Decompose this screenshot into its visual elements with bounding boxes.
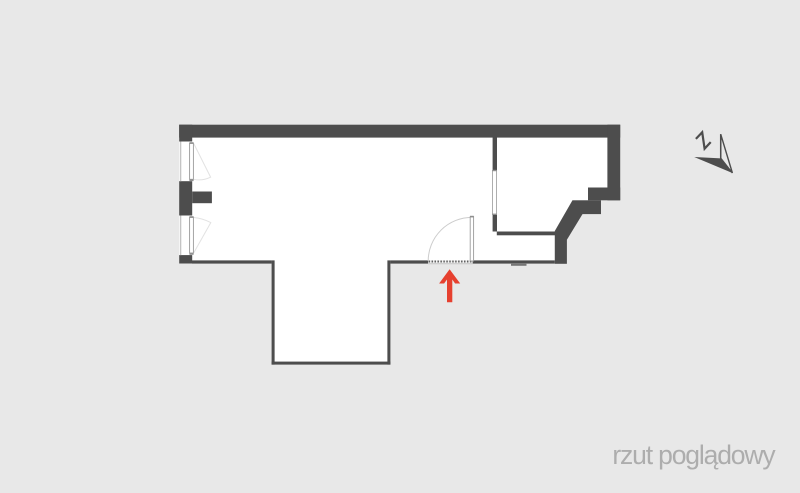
svg-text:rzut poglądowy: rzut poglądowy [612, 440, 776, 470]
